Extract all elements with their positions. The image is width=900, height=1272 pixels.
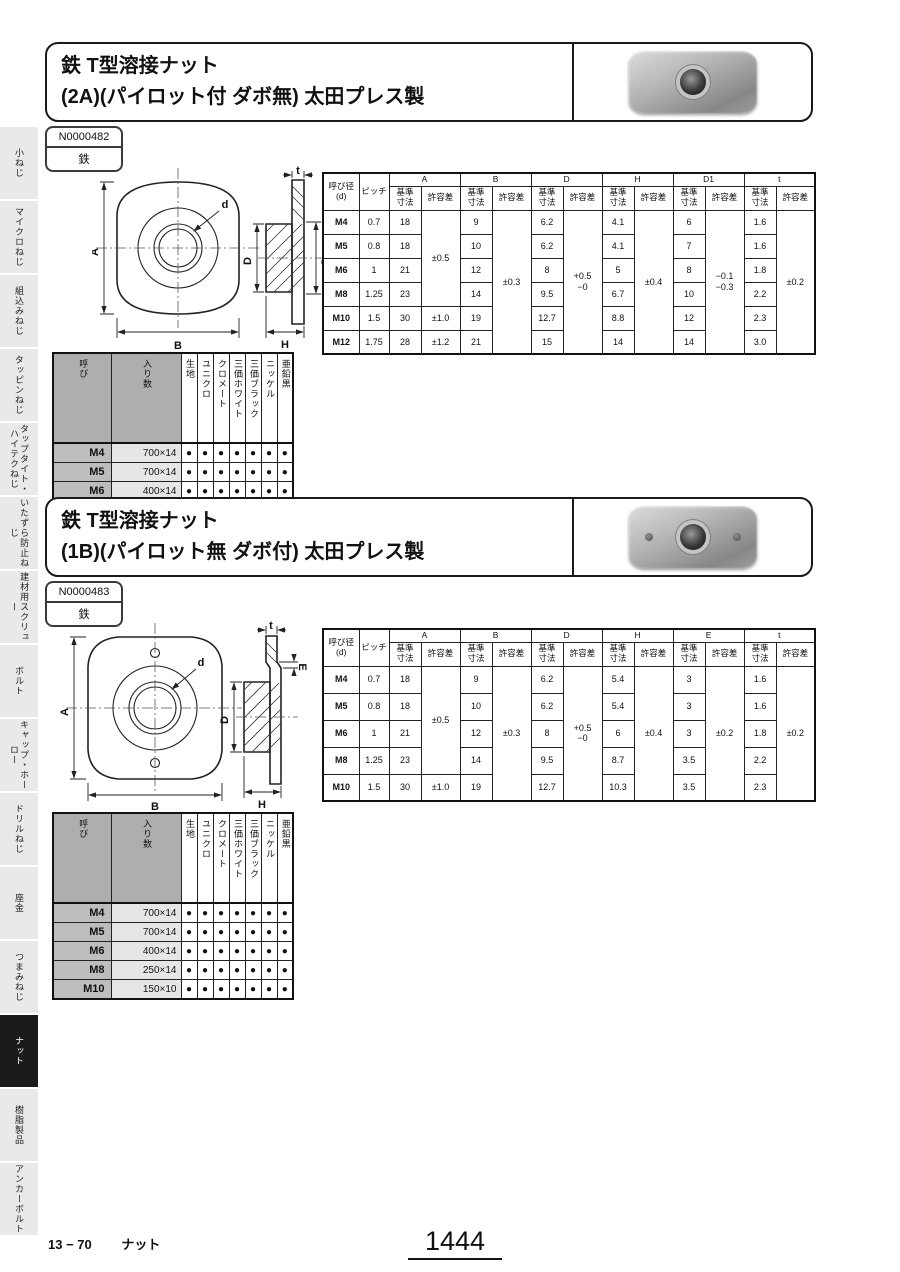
basic-dim-cell: 3.5 [673, 747, 705, 774]
pack-qty-cell: 150×10 [111, 980, 181, 1000]
availability-dot: ● [261, 443, 277, 463]
basic-dim-cell: 8.8 [602, 306, 634, 330]
dim-label-t: t [296, 166, 300, 177]
availability-dot: ● [229, 443, 245, 463]
pack-row-M5: M5700×14●●●●●●● [53, 923, 293, 942]
photo-hole [680, 69, 706, 95]
dabo-projection [733, 533, 741, 541]
basic-dim-cell: 1.6 [744, 234, 776, 258]
basic-dim-cell: 9 [460, 210, 492, 234]
basic-dim-cell: 2.2 [744, 282, 776, 306]
basic-dim-cell: 21 [389, 720, 421, 747]
col-header-basic-D: 基準 寸法 [531, 642, 563, 666]
basic-dim-cell: 15 [531, 330, 563, 354]
availability-dot: ● [277, 903, 293, 923]
availability-dot: ● [245, 942, 261, 961]
pack-header-finish: ニッケル [261, 813, 277, 903]
pitch-cell: 0.8 [359, 693, 389, 720]
pack-header-finish: ユニクロ [197, 353, 213, 443]
section1-header-box: 鉄 T型溶接ナット (2A)(パイロット付 ダボ無) 太田プレス製 [45, 42, 813, 122]
availability-dot: ● [213, 903, 229, 923]
tolerance-cell: ±0.2 [776, 210, 815, 354]
col-group-D: D [531, 173, 602, 186]
dim-label-B: B [151, 801, 159, 812]
availability-dot: ● [181, 443, 197, 463]
col-header-tolerance-t: 許容差 [776, 642, 815, 666]
size-cell: M6 [323, 720, 359, 747]
tolerance-cell: ±1.0 [421, 306, 460, 330]
pack-header-finish: 亜鉛黒 [277, 813, 293, 903]
pitch-cell: 1 [359, 720, 389, 747]
dim-label-E: E [296, 663, 308, 670]
availability-dot: ● [277, 942, 293, 961]
basic-dim-cell: 3.0 [744, 330, 776, 354]
basic-dim-cell: 1.6 [744, 666, 776, 693]
pack-qty-cell: 700×14 [111, 903, 181, 923]
col-group-t: t [744, 173, 815, 186]
sidebar-item-tsumami-neji[interactable]: つまみねじ [0, 941, 38, 1013]
dim-label-H: H [281, 339, 289, 351]
pack-size-cell: M8 [53, 961, 111, 980]
size-cell: M8 [323, 747, 359, 774]
size-cell: M5 [323, 234, 359, 258]
availability-dot: ● [229, 942, 245, 961]
footer-code: 13 − 70 [48, 1237, 92, 1252]
col-header-tolerance-B: 許容差 [492, 186, 531, 210]
product-code: N0000482 [47, 128, 121, 148]
dim-label-D: D [242, 257, 254, 265]
basic-dim-cell: 2.2 [744, 747, 776, 774]
col-header-tolerance-t: 許容差 [776, 186, 815, 210]
col-group-E: E [673, 629, 744, 642]
availability-dot: ● [197, 923, 213, 942]
col-header-tolerance-H: 許容差 [634, 642, 673, 666]
availability-dot: ● [245, 961, 261, 980]
section2-title: 鉄 T型溶接ナット (1B)(パイロット無 ダボ付) 太田プレス製 [47, 499, 572, 575]
basic-dim-cell: 6 [602, 720, 634, 747]
basic-dim-cell: 10 [460, 234, 492, 258]
availability-dot: ● [261, 903, 277, 923]
pitch-cell: 1.25 [359, 747, 389, 774]
technical-drawing-2a: d A B t D D₁ H [92, 166, 328, 352]
product-photo-tnut-2a [629, 51, 757, 113]
size-cell: M12 [323, 330, 359, 354]
basic-dim-cell: 6.2 [531, 210, 563, 234]
pack-size-cell: M10 [53, 980, 111, 1000]
basic-dim-cell: 12.7 [531, 306, 563, 330]
basic-dim-cell: 12 [460, 258, 492, 282]
size-cell: M10 [323, 306, 359, 330]
basic-dim-cell: 5 [602, 258, 634, 282]
availability-dot: ● [277, 961, 293, 980]
availability-dot: ● [261, 463, 277, 482]
col-header-pitch: ピッチ [359, 629, 389, 666]
availability-dot: ● [277, 923, 293, 942]
availability-dot: ● [245, 923, 261, 942]
availability-dot: ● [181, 903, 197, 923]
basic-dim-cell: 6.2 [531, 234, 563, 258]
sidebar-item-itazura-boushi-neji[interactable]: いたずら防止ねじ [0, 497, 38, 569]
pack-qty-cell: 700×14 [111, 923, 181, 942]
basic-dim-cell: 3 [673, 666, 705, 693]
col-header-basic-D1: 基準 寸法 [673, 186, 705, 210]
pack-header-finish: クロメート [213, 813, 229, 903]
sidebar-item-kumikomi-neji[interactable]: 組込みねじ [0, 275, 38, 347]
section2-title-line2: (1B)(パイロット無 ダボ付) 太田プレス製 [61, 537, 572, 568]
col-header-basic-A: 基準 寸法 [389, 186, 421, 210]
availability-dot: ● [245, 463, 261, 482]
pack-header-size: 呼び [53, 353, 111, 443]
basic-dim-cell: 19 [460, 774, 492, 801]
dim-label-D: D [219, 716, 231, 724]
dim-row-M4: M40.718±0.59±0.36.2+0.5 −04.1±0.46−0.1 −… [323, 210, 815, 234]
basic-dim-cell: 21 [460, 330, 492, 354]
basic-dim-cell: 4.1 [602, 210, 634, 234]
tolerance-cell: ±0.4 [634, 666, 673, 801]
basic-dim-cell: 12 [673, 306, 705, 330]
sidebar-item-anchor-bolt[interactable]: アンカーボルト [0, 1163, 38, 1235]
tolerance-cell: +0.5 −0 [563, 210, 602, 354]
basic-dim-cell: 18 [389, 693, 421, 720]
product-photo-tnut-1b [629, 506, 757, 568]
sidebar-item-tapping-neji[interactable]: タッピンねじ [0, 349, 38, 421]
pack-header-finish: 三価ホワイト [229, 353, 245, 443]
basic-dim-cell: 6.2 [531, 666, 563, 693]
availability-dot: ● [197, 463, 213, 482]
basic-dim-cell: 7 [673, 234, 705, 258]
availability-dot: ● [261, 980, 277, 1000]
col-group-B: B [460, 629, 531, 642]
availability-dot: ● [229, 923, 245, 942]
pitch-cell: 1.5 [359, 774, 389, 801]
col-header-basic-D: 基準 寸法 [531, 186, 563, 210]
pack-header-finish: 亜鉛黒 [277, 353, 293, 443]
basic-dim-cell: 1.6 [744, 693, 776, 720]
availability-dot: ● [229, 961, 245, 980]
size-cell: M4 [323, 666, 359, 693]
basic-dim-cell: 2.3 [744, 774, 776, 801]
col-header-tolerance-A: 許容差 [421, 186, 460, 210]
dim-label-d: d [198, 657, 205, 669]
col-header-basic-B: 基準 寸法 [460, 186, 492, 210]
availability-dot: ● [213, 980, 229, 1000]
pack-size-cell: M5 [53, 923, 111, 942]
pack-size-cell: M5 [53, 463, 111, 482]
basic-dim-cell: 5.4 [602, 666, 634, 693]
availability-dot: ● [181, 961, 197, 980]
col-header-tolerance-D: 許容差 [563, 642, 602, 666]
basic-dim-cell: 3 [673, 693, 705, 720]
basic-dim-cell: 3.5 [673, 774, 705, 801]
dim-label-A: A [92, 248, 101, 256]
tolerance-cell: ±1.0 [421, 774, 460, 801]
basic-dim-cell: 8 [531, 258, 563, 282]
availability-dot: ● [245, 980, 261, 1000]
sidebar-item-jushi-seihin[interactable]: 樹脂製品 [0, 1089, 38, 1161]
section2-title-line1: 鉄 T型溶接ナット [61, 506, 572, 537]
section1-title-line2: (2A)(パイロット付 ダボ無) 太田プレス製 [61, 82, 572, 113]
col-group-H: H [602, 173, 673, 186]
photo-hole [680, 524, 706, 550]
col-header-tolerance-E: 許容差 [705, 642, 744, 666]
basic-dim-cell: 23 [389, 747, 421, 774]
availability-dot: ● [261, 923, 277, 942]
pack-size-cell: M4 [53, 903, 111, 923]
col-header-basic-B: 基準 寸法 [460, 642, 492, 666]
availability-dot: ● [181, 942, 197, 961]
availability-dot: ● [197, 961, 213, 980]
availability-dot: ● [229, 980, 245, 1000]
size-cell: M5 [323, 693, 359, 720]
sidebar-item-micro-neji[interactable]: マイクロねじ [0, 201, 38, 273]
section1-title: 鉄 T型溶接ナット (2A)(パイロット付 ダボ無) 太田プレス製 [47, 44, 572, 120]
dim-label-B: B [174, 340, 182, 352]
basic-dim-cell: 8.7 [602, 747, 634, 774]
section1-title-line1: 鉄 T型溶接ナット [61, 51, 572, 82]
availability-dot: ● [213, 923, 229, 942]
footer-category: ナット [121, 1237, 160, 1252]
basic-dim-cell: 9.5 [531, 282, 563, 306]
col-header-basic-t: 基準 寸法 [744, 642, 776, 666]
basic-dim-cell: 6.7 [602, 282, 634, 306]
basic-dim-cell: 14 [602, 330, 634, 354]
basic-dim-cell: 4.1 [602, 234, 634, 258]
col-group-t: t [744, 629, 815, 642]
pack-header-finish: 生地 [181, 813, 197, 903]
pack-header-finish: 三価ブラック [245, 813, 261, 903]
sidebar-item-drill-neji[interactable]: ドリルねじ [0, 793, 38, 865]
pack-header-qty: 入り数 [111, 813, 181, 903]
tolerance-cell: ±0.4 [634, 210, 673, 354]
category-sidebar: 小ねじマイクロねじ組込みねじタッピンねじタップタイト・ハイテクねじいたずら防止ね… [0, 0, 38, 1272]
availability-dot: ● [277, 463, 293, 482]
pack-header-qty: 入り数 [111, 353, 181, 443]
pack-qty-cell: 700×14 [111, 463, 181, 482]
pack-row-M4: M4700×14●●●●●●● [53, 443, 293, 463]
basic-dim-cell: 6 [673, 210, 705, 234]
availability-dot: ● [213, 961, 229, 980]
pack-header-size: 呼び [53, 813, 111, 903]
basic-dim-cell: 19 [460, 306, 492, 330]
dim-label-t: t [269, 620, 273, 632]
dabo-projection [645, 533, 653, 541]
col-header-basic-t: 基準 寸法 [744, 186, 776, 210]
size-cell: M4 [323, 210, 359, 234]
basic-dim-cell: 8 [531, 720, 563, 747]
section2-photo-pane [572, 499, 811, 575]
col-header-basic-A: 基準 寸法 [389, 642, 421, 666]
availability-dot: ● [213, 443, 229, 463]
col-group-H: H [602, 629, 673, 642]
pitch-cell: 1.25 [359, 282, 389, 306]
pack-header-finish: ユニクロ [197, 813, 213, 903]
tolerance-cell: ±0.2 [776, 666, 815, 801]
pitch-cell: 1 [359, 258, 389, 282]
col-header-basic-H: 基準 寸法 [602, 642, 634, 666]
availability-dot: ● [197, 980, 213, 1000]
pack-size-cell: M6 [53, 942, 111, 961]
availability-dot: ● [229, 903, 245, 923]
col-header-size: 呼び径 (d) [323, 629, 359, 666]
basic-dim-cell: 12 [460, 720, 492, 747]
dim-row-M4: M40.718±0.59±0.36.2+0.5 −05.4±0.43±0.21.… [323, 666, 815, 693]
sidebar-item-nut[interactable]: ナット [0, 1015, 38, 1087]
size-cell: M10 [323, 774, 359, 801]
size-cell: M6 [323, 258, 359, 282]
col-group-B: B [460, 173, 531, 186]
availability-dot: ● [197, 443, 213, 463]
basic-dim-cell: 6.2 [531, 693, 563, 720]
basic-dim-cell: 10 [460, 693, 492, 720]
availability-dot: ● [229, 463, 245, 482]
availability-dot: ● [277, 443, 293, 463]
basic-dim-cell: 21 [389, 258, 421, 282]
pack-row-M6: M6400×14●●●●●●● [53, 942, 293, 961]
basic-dim-cell: 14 [673, 330, 705, 354]
basic-dim-cell: 9 [460, 666, 492, 693]
dim-label-A: A [60, 708, 71, 716]
availability-dot: ● [213, 942, 229, 961]
basic-dim-cell: 23 [389, 282, 421, 306]
product-code: N0000483 [47, 583, 121, 603]
pack-header-finish: 三価ブラック [245, 353, 261, 443]
pack-header-finish: 生地 [181, 353, 197, 443]
pack-row-M4: M4700×14●●●●●●● [53, 903, 293, 923]
basic-dim-cell: 2.3 [744, 306, 776, 330]
basic-dim-cell: 1.8 [744, 258, 776, 282]
tolerance-cell: ±0.2 [705, 666, 744, 801]
availability-dot: ● [181, 463, 197, 482]
col-header-tolerance-B: 許容差 [492, 642, 531, 666]
basic-dim-cell: 9.5 [531, 747, 563, 774]
pack-size-cell: M4 [53, 443, 111, 463]
basic-dim-cell: 18 [389, 666, 421, 693]
pack-header-finish: 三価ホワイト [229, 813, 245, 903]
tolerance-cell: +0.5 −0 [563, 666, 602, 801]
basic-dim-cell: 8 [673, 258, 705, 282]
dimension-table-2a: 呼び径 (d)ピッチABDHD1t基準 寸法許容差基準 寸法許容差基準 寸法許容… [322, 172, 816, 355]
availability-dot: ● [197, 942, 213, 961]
packaging-table-1b: 呼び入り数生地ユニクロクロメート三価ホワイト三価ブラックニッケル亜鉛黒M4700… [52, 812, 294, 1000]
col-group-A: A [389, 173, 460, 186]
pitch-cell: 0.7 [359, 666, 389, 693]
pack-header-finish: ニッケル [261, 353, 277, 443]
basic-dim-cell: 18 [389, 234, 421, 258]
basic-dim-cell: 5.4 [602, 693, 634, 720]
pitch-cell: 1.75 [359, 330, 389, 354]
sidebar-item-koneji[interactable]: 小ねじ [0, 127, 38, 199]
col-header-size: 呼び径 (d) [323, 173, 359, 210]
pack-row-M5: M5700×14●●●●●●● [53, 463, 293, 482]
pack-row-M8: M8250×14●●●●●●● [53, 961, 293, 980]
col-header-basic-H: 基準 寸法 [602, 186, 634, 210]
section2-header-box: 鉄 T型溶接ナット (1B)(パイロット無 ダボ付) 太田プレス製 [45, 497, 813, 577]
sidebar-item-taptite-hitech-neji[interactable]: タップタイト・ハイテクねじ [0, 423, 38, 495]
tolerance-cell: ±0.3 [492, 666, 531, 801]
basic-dim-cell: 3 [673, 720, 705, 747]
size-cell: M8 [323, 282, 359, 306]
availability-dot: ● [261, 942, 277, 961]
availability-dot: ● [213, 463, 229, 482]
tolerance-cell: ±1.2 [421, 330, 460, 354]
availability-dot: ● [245, 443, 261, 463]
availability-dot: ● [261, 961, 277, 980]
pack-qty-cell: 700×14 [111, 443, 181, 463]
tolerance-cell: ±0.3 [492, 210, 531, 354]
col-header-tolerance-D1: 許容差 [705, 186, 744, 210]
col-header-tolerance-A: 許容差 [421, 642, 460, 666]
tolerance-cell: ±0.5 [421, 666, 460, 774]
basic-dim-cell: 18 [389, 210, 421, 234]
pitch-cell: 0.7 [359, 210, 389, 234]
availability-dot: ● [197, 903, 213, 923]
col-header-basic-E: 基準 寸法 [673, 642, 705, 666]
basic-dim-cell: 1.6 [744, 210, 776, 234]
pitch-cell: 0.8 [359, 234, 389, 258]
col-header-pitch: ピッチ [359, 173, 389, 210]
basic-dim-cell: 10 [673, 282, 705, 306]
col-group-A: A [389, 629, 460, 642]
technical-drawing-1b: d A B t E D H [60, 620, 310, 812]
basic-dim-cell: 10.3 [602, 774, 634, 801]
col-group-D: D [531, 629, 602, 642]
sidebar-item-kenzai-screw[interactable]: 建材用スクリュー [0, 571, 38, 643]
basic-dim-cell: 1.8 [744, 720, 776, 747]
sidebar-item-zagane[interactable]: 座金 [0, 867, 38, 939]
col-header-tolerance-D: 許容差 [563, 186, 602, 210]
tolerance-cell: ±0.5 [421, 210, 460, 306]
dimension-table-1b: 呼び径 (d)ピッチABDHEt基準 寸法許容差基準 寸法許容差基準 寸法許容差… [322, 628, 816, 802]
pitch-cell: 1.5 [359, 306, 389, 330]
sidebar-item-bolt[interactable]: ボルト [0, 645, 38, 717]
dim-label-H: H [258, 799, 266, 811]
pack-qty-cell: 400×14 [111, 942, 181, 961]
availability-dot: ● [181, 923, 197, 942]
pack-header-finish: クロメート [213, 353, 229, 443]
basic-dim-cell: 14 [460, 747, 492, 774]
footer-section-ref: 13 − 70 ナット [48, 1234, 160, 1253]
col-group-D1: D1 [673, 173, 744, 186]
basic-dim-cell: 30 [389, 306, 421, 330]
pack-qty-cell: 250×14 [111, 961, 181, 980]
col-header-tolerance-H: 許容差 [634, 186, 673, 210]
tolerance-cell: −0.1 −0.3 [705, 210, 744, 354]
basic-dim-cell: 12.7 [531, 774, 563, 801]
basic-dim-cell: 14 [460, 282, 492, 306]
basic-dim-cell: 30 [389, 774, 421, 801]
availability-dot: ● [277, 980, 293, 1000]
section1-photo-pane [572, 44, 811, 120]
availability-dot: ● [245, 903, 261, 923]
pack-row-M10: M10150×10●●●●●●● [53, 980, 293, 1000]
dim-label-d: d [222, 199, 229, 211]
catalog-page: 小ねじマイクロねじ組込みねじタッピンねじタップタイト・ハイテクねじいたずら防止ね… [0, 0, 900, 1272]
sidebar-item-cap-horo[interactable]: キャップ・ホーロー [0, 719, 38, 791]
availability-dot: ● [181, 980, 197, 1000]
basic-dim-cell: 28 [389, 330, 421, 354]
page-number: 1444 [408, 1226, 502, 1260]
